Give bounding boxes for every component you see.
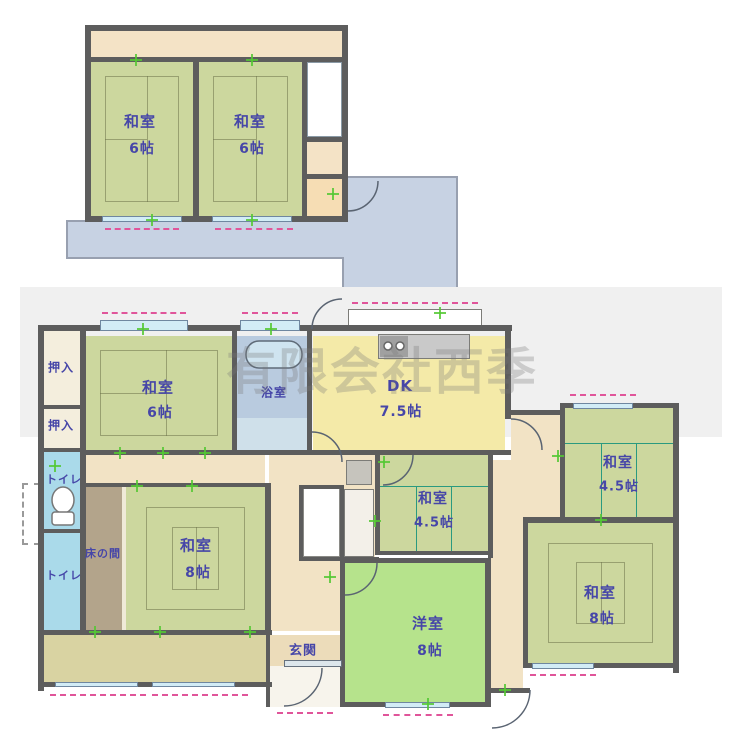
room-washitsu-8-left <box>126 487 265 630</box>
dim-tick <box>154 626 166 638</box>
wall <box>85 25 91 222</box>
dim-tick <box>131 480 143 492</box>
wall <box>342 25 348 222</box>
label-washitsu6-2f-right-size: 6帖 <box>239 138 265 158</box>
dim-tick <box>246 54 258 66</box>
balcony-strip-2f <box>91 31 342 57</box>
wall <box>265 483 271 635</box>
wall <box>485 558 491 707</box>
wall <box>193 57 199 221</box>
label-washitsu6-1f-size: 6帖 <box>147 402 173 422</box>
dim-tick <box>595 514 607 526</box>
dim-tick <box>137 323 149 335</box>
tatami-line <box>380 486 488 487</box>
wall <box>340 558 345 707</box>
dim-tick <box>130 54 142 66</box>
window <box>102 216 182 222</box>
tatami-line <box>565 443 673 444</box>
label-oshiire-2: 押入 <box>48 417 74 434</box>
wall <box>299 485 303 561</box>
dim-tick <box>186 480 198 492</box>
wall <box>42 405 80 409</box>
window <box>573 403 633 409</box>
label-yoshitsu8-size: 8帖 <box>417 640 443 660</box>
wall <box>560 403 565 522</box>
dim-tick <box>324 571 336 583</box>
window-dash <box>50 694 146 696</box>
dim-tick <box>327 188 339 200</box>
wall <box>299 557 379 561</box>
veranda <box>42 635 266 682</box>
wall <box>85 57 348 62</box>
label-oshiire-1: 押入 <box>48 359 74 376</box>
dim-tick <box>244 626 256 638</box>
room-toilet-1 <box>42 452 80 529</box>
dim-tick <box>89 626 101 638</box>
wall <box>266 631 270 707</box>
label-toilet-2: トイレ <box>46 567 82 583</box>
dim-tick <box>146 214 158 226</box>
wall <box>85 25 348 31</box>
label-washitsu6-1f: 和室 <box>142 377 174 398</box>
window-dash <box>383 714 453 716</box>
label-washitsu6-2f-right: 和室 <box>234 111 266 132</box>
window <box>532 663 594 669</box>
label-washitsu8-right-size: 8帖 <box>589 608 615 628</box>
stairs-1f <box>303 487 340 557</box>
door-arc-2f-storage <box>348 181 378 211</box>
wall <box>302 174 348 179</box>
window <box>55 682 138 687</box>
label-washitsu8-right: 和室 <box>584 582 616 603</box>
wall <box>38 325 44 691</box>
window-dash <box>277 712 333 714</box>
window-dash <box>530 674 596 676</box>
door-arc-corridor-south <box>492 690 530 728</box>
window <box>152 682 235 687</box>
window-dash <box>352 302 478 304</box>
window-dash <box>570 394 636 396</box>
window-dash <box>102 312 186 314</box>
dim-tick <box>114 447 126 459</box>
dim-tick <box>157 447 169 459</box>
label-washitsu45-mid-size: 4.5帖 <box>414 512 454 531</box>
window-dash <box>152 694 248 696</box>
dim-tick <box>552 450 564 462</box>
dim-tick <box>378 456 390 468</box>
window-dash <box>105 228 179 230</box>
tatami-grid <box>146 507 245 610</box>
genkan-porch <box>269 666 342 707</box>
wall <box>42 448 80 452</box>
floor-plan: 有限会社西季 和室6帖和室6帖和室6帖浴室DK7.5帖和室4.5帖和室4.5帖和… <box>0 0 742 750</box>
label-toilet-1: トイレ <box>46 471 82 487</box>
watermark: 有限会社西季 <box>226 332 538 404</box>
wall <box>82 483 271 487</box>
wall <box>673 403 679 673</box>
stairs-2f <box>307 62 342 137</box>
wall <box>302 137 348 142</box>
dim-tick <box>246 214 258 226</box>
label-yoshitsu8: 洋室 <box>412 613 444 634</box>
window-dash <box>215 228 293 230</box>
label-washitsu6-2f-left-size: 6帖 <box>129 138 155 158</box>
wall <box>42 529 80 533</box>
wall <box>340 485 344 561</box>
dim-tick <box>369 515 381 527</box>
wall <box>375 455 380 555</box>
dim-tick <box>199 447 211 459</box>
appliance <box>346 460 372 485</box>
label-washitsu45-right-size: 4.5帖 <box>599 476 639 495</box>
hall-east-mid <box>523 455 560 517</box>
wall <box>488 455 493 558</box>
entrance-door <box>284 660 342 667</box>
label-washitsu8-left: 和室 <box>180 535 212 556</box>
label-washitsu45-right: 和室 <box>603 452 633 472</box>
landing-2f <box>307 142 342 174</box>
bathroom-lower <box>237 418 307 450</box>
dim-tick <box>499 684 511 696</box>
label-washitsu6-2f-left: 和室 <box>124 111 156 132</box>
wall <box>511 410 563 415</box>
dim-tick <box>422 698 434 710</box>
window <box>385 702 450 708</box>
wall <box>375 551 493 555</box>
label-tokonoma: 床の間 <box>85 545 121 561</box>
dim-tick <box>434 307 446 319</box>
label-dk-size: 7.5帖 <box>380 401 423 421</box>
label-washitsu45-mid: 和室 <box>418 488 448 508</box>
wall <box>299 485 343 489</box>
label-washitsu8-left-size: 8帖 <box>185 562 211 582</box>
wall <box>523 517 528 668</box>
window-dash <box>242 312 298 314</box>
wall <box>312 450 511 455</box>
hall-upper <box>86 455 265 485</box>
label-genkan: 玄関 <box>289 640 317 659</box>
